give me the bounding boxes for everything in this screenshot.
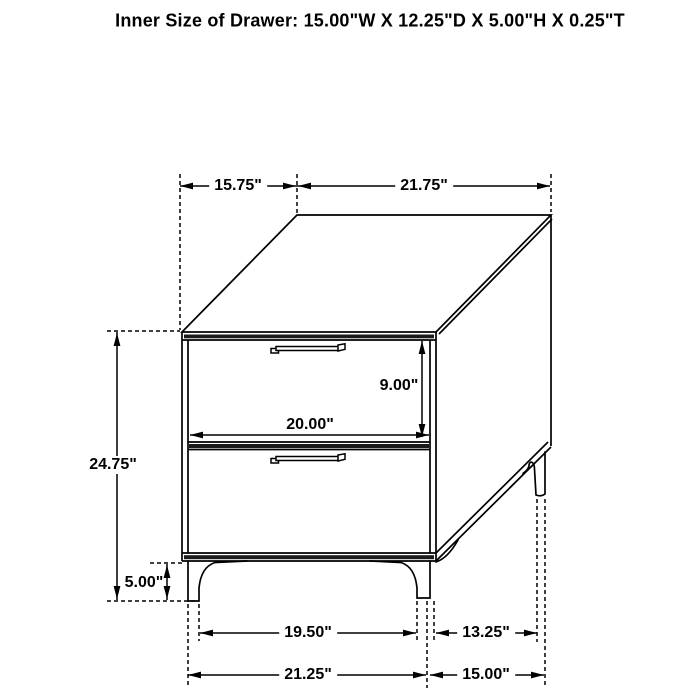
top-edge-inner-line bbox=[439, 219, 552, 334]
dim-label-base-side-depth: 15.00" bbox=[457, 666, 515, 684]
dimension-diagram-page: Inner Size of Drawer: 15.00"W X 12.25"D … bbox=[0, 0, 700, 700]
dim-label-overall-height: 24.75" bbox=[84, 456, 142, 474]
page-title: Inner Size of Drawer: 15.00"W X 12.25"D … bbox=[115, 11, 625, 32]
dim-label-drawer-front-height: 9.00" bbox=[380, 378, 419, 394]
dim-label-front-leg-spacing: 19.50" bbox=[279, 624, 337, 642]
dim-label-drawer-front-width: 20.00" bbox=[286, 417, 334, 433]
top-band-fill bbox=[184, 335, 434, 339]
drawer-handle-top bbox=[271, 344, 345, 353]
nightstand-line-drawing bbox=[0, 0, 700, 700]
dim-label-leg-height: 5.00" bbox=[125, 575, 164, 591]
bottom-band-fill bbox=[184, 555, 434, 559]
dim-label-top-width: 21.75" bbox=[395, 177, 453, 195]
drawer-handle-bottom bbox=[271, 454, 345, 463]
dim-label-base-front-width: 21.25" bbox=[279, 666, 337, 684]
cabinet-band-fills bbox=[184, 335, 434, 560]
cabinet-outline bbox=[182, 215, 552, 561]
top-surface bbox=[182, 215, 551, 332]
front-left-leg bbox=[188, 561, 247, 601]
divider-band-fill bbox=[189, 444, 429, 448]
side-bottom-edge-inner bbox=[436, 442, 548, 553]
front-right-leg bbox=[370, 561, 430, 598]
back-right-leg bbox=[523, 452, 545, 496]
dim-label-side-leg-spacing: 13.25" bbox=[457, 624, 515, 642]
cabinet-legs bbox=[188, 452, 545, 601]
dim-label-top-depth: 15.75" bbox=[209, 177, 267, 195]
